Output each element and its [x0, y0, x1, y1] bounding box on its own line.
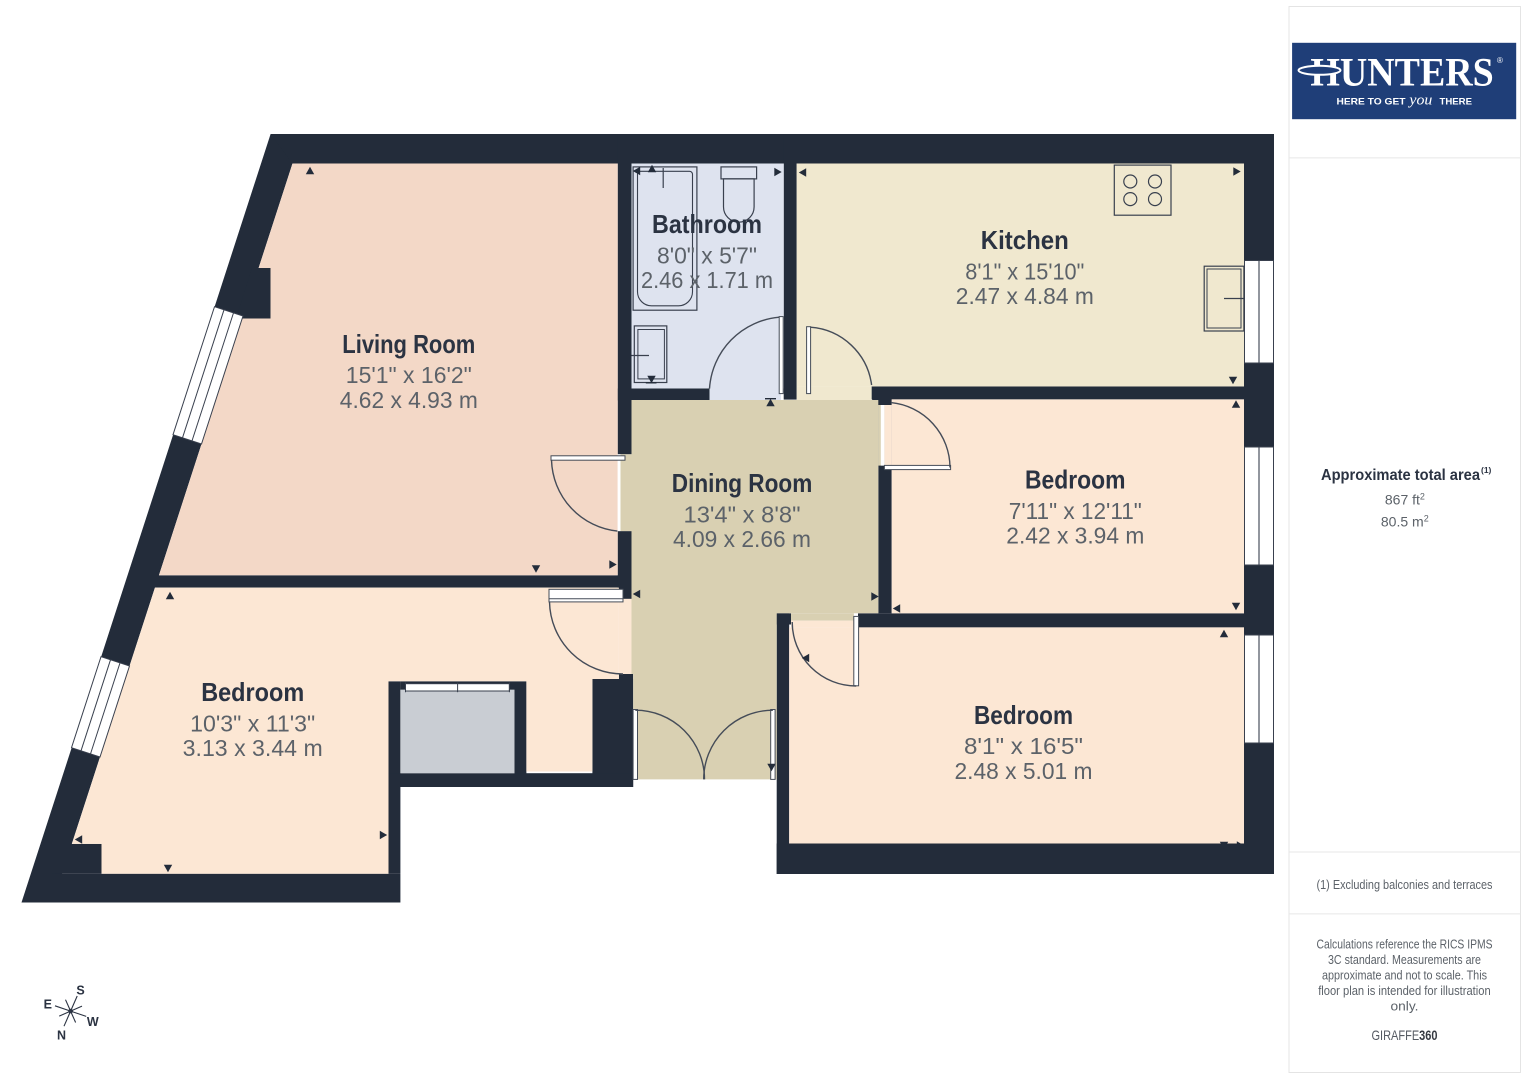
svg-text:GIRAFFE360: GIRAFFE360	[1372, 1027, 1438, 1043]
svg-text:2.42 x 3.94 m: 2.42 x 3.94 m	[1006, 523, 1144, 549]
svg-text:8'1" x 15'10": 8'1" x 15'10"	[965, 258, 1084, 284]
svg-text:N: N	[57, 1029, 66, 1043]
svg-text:(1): (1)	[1481, 465, 1492, 475]
svg-text:Calculations reference the RIC: Calculations reference the RICS IPMS	[1317, 938, 1493, 952]
svg-text:7'11" x 12'11": 7'11" x 12'11"	[1009, 498, 1142, 524]
svg-text:approximate and not to scale.: approximate and not to scale. This	[1322, 969, 1487, 983]
svg-text:THERE: THERE	[1440, 97, 1473, 108]
svg-text:80.5 m2: 80.5 m2	[1381, 514, 1429, 530]
svg-text:Approximate total area: Approximate total area	[1321, 467, 1480, 484]
svg-text:2.47 x 4.84 m: 2.47 x 4.84 m	[956, 283, 1094, 309]
svg-text:Living Room: Living Room	[342, 329, 475, 359]
svg-text:13'4" x 8'8": 13'4" x 8'8"	[684, 501, 801, 527]
svg-text:S: S	[76, 984, 84, 998]
svg-text:2.46 x 1.71 m: 2.46 x 1.71 m	[641, 267, 773, 293]
svg-text:(1) Excluding balconies and te: (1) Excluding balconies and terraces	[1317, 878, 1493, 892]
svg-text:4.09 x 2.66 m: 4.09 x 2.66 m	[673, 526, 811, 552]
svg-text:2.48 x 5.01 m: 2.48 x 5.01 m	[955, 758, 1093, 784]
svg-text:Dining Room: Dining Room	[672, 468, 813, 498]
svg-text:8'1" x 16'5": 8'1" x 16'5"	[964, 733, 1083, 759]
svg-text:HERE TO GET: HERE TO GET	[1337, 97, 1406, 108]
svg-text:Bathroom: Bathroom	[652, 209, 762, 239]
svg-text:15'1" x 16'2": 15'1" x 16'2"	[346, 362, 472, 388]
svg-text:867 ft2: 867 ft2	[1385, 492, 1425, 508]
svg-text:you: you	[1407, 93, 1432, 109]
svg-text:only.: only.	[1391, 1000, 1419, 1014]
svg-text:®: ®	[1497, 56, 1503, 65]
svg-text:10'3" x 11'3": 10'3" x 11'3"	[190, 710, 315, 736]
svg-text:E: E	[44, 998, 52, 1012]
svg-text:3C standard. Measurements are: 3C standard. Measurements are	[1328, 953, 1481, 967]
svg-text:floor plan is intended for ill: floor plan is intended for illustration	[1318, 984, 1491, 998]
svg-text:3.13 x 3.44 m: 3.13 x 3.44 m	[183, 735, 323, 761]
svg-text:8'0" x 5'7": 8'0" x 5'7"	[657, 243, 757, 269]
svg-text:Bedroom: Bedroom	[1025, 465, 1126, 495]
svg-text:4.62 x 4.93 m: 4.62 x 4.93 m	[340, 387, 478, 413]
svg-text:Kitchen: Kitchen	[981, 225, 1069, 255]
svg-text:Bedroom: Bedroom	[974, 700, 1073, 730]
svg-text:Bedroom: Bedroom	[201, 677, 304, 707]
svg-text:W: W	[87, 1015, 99, 1029]
